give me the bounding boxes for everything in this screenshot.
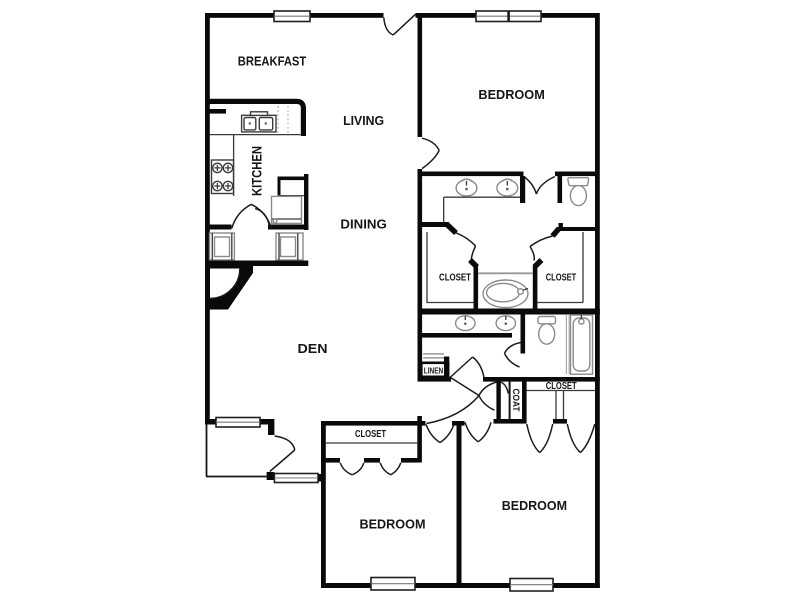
svg-text:BEDROOM: BEDROOM: [360, 516, 426, 531]
svg-text:KITCHEN: KITCHEN: [249, 146, 264, 196]
svg-text:LIVING: LIVING: [343, 114, 384, 128]
svg-text:COAT: COAT: [511, 389, 521, 413]
svg-text:CLOSET: CLOSET: [355, 429, 386, 440]
svg-text:CLOSET: CLOSET: [439, 272, 471, 283]
svg-text:LINEN: LINEN: [424, 367, 444, 376]
svg-text:CLOSET: CLOSET: [546, 272, 577, 283]
svg-text:BEDROOM: BEDROOM: [478, 87, 544, 102]
svg-text:DINING: DINING: [340, 216, 386, 231]
svg-text:BEDROOM: BEDROOM: [502, 498, 567, 513]
svg-text:BREAKFAST: BREAKFAST: [238, 53, 307, 68]
svg-text:DEN: DEN: [298, 341, 328, 356]
svg-text:CLOSET: CLOSET: [546, 381, 577, 392]
